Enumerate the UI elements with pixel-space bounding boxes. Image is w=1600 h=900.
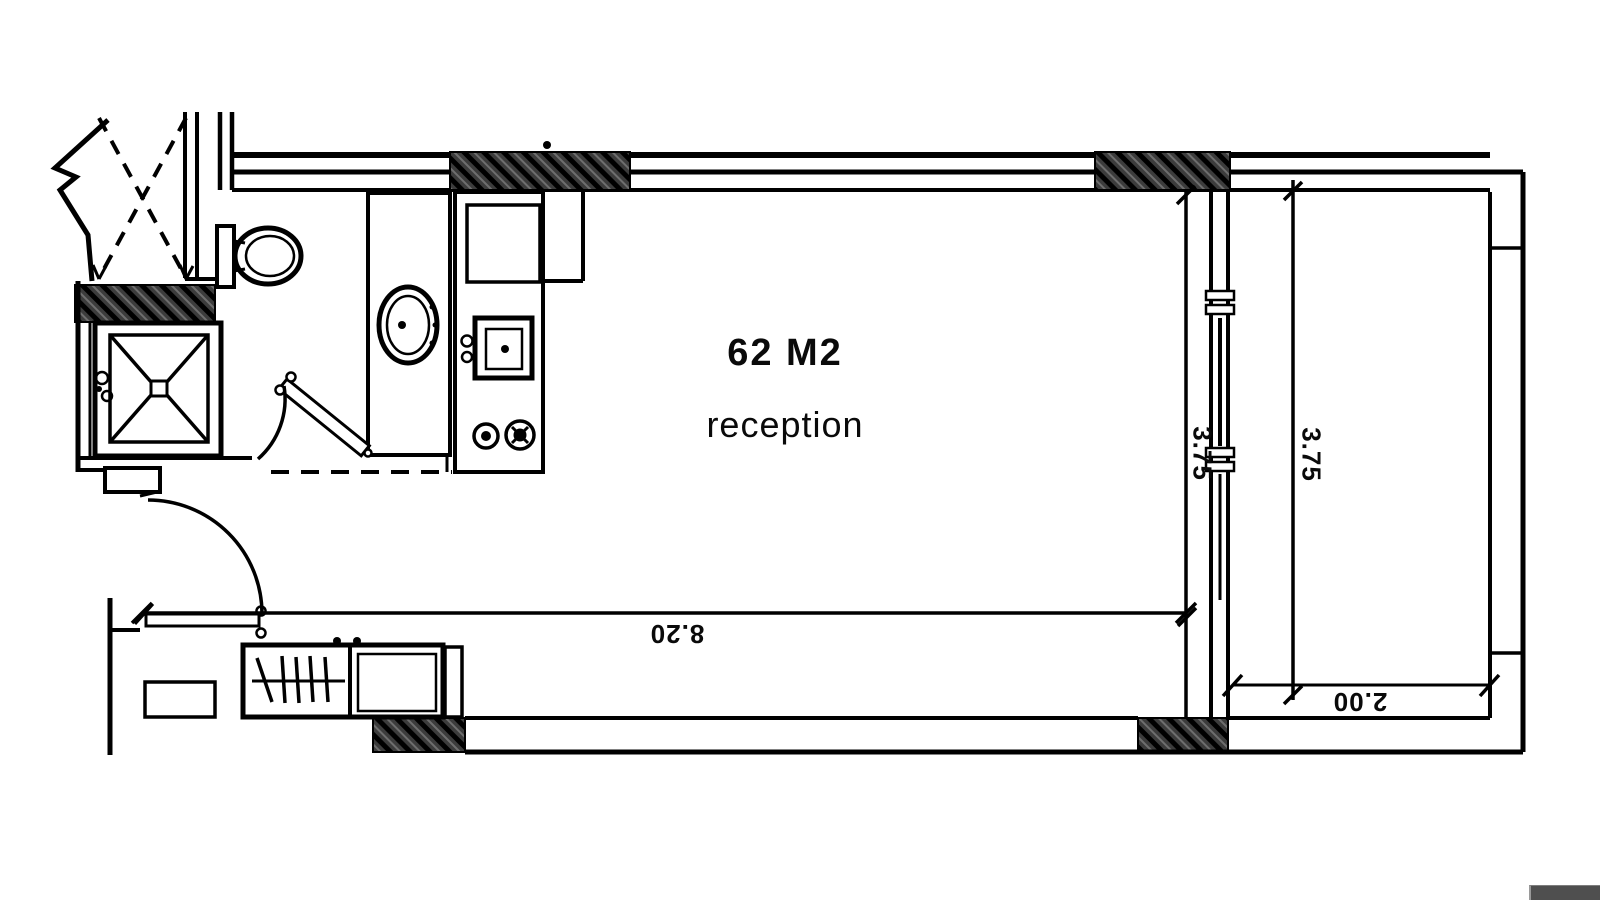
scrollbar-fragment[interactable] xyxy=(1529,885,1600,900)
wardrobe-end-panel xyxy=(445,647,462,717)
wall-hatch-bottom-right xyxy=(1138,718,1228,752)
washbasin-fixture xyxy=(368,193,450,455)
top-wall xyxy=(220,112,1523,190)
wall-hatch-top-left xyxy=(450,152,630,190)
elevator-shaft xyxy=(55,112,216,281)
shaft-dashed-x xyxy=(99,118,186,278)
room-area-label: 62 M2 xyxy=(685,332,885,375)
wardrobe xyxy=(145,637,462,717)
floorplan-viewer: 62 M2 reception 8.20 3.75 3.75 2.00 xyxy=(0,0,1600,900)
basin-drain xyxy=(398,321,406,329)
balcony xyxy=(1490,172,1523,752)
entry-door-swing-arc xyxy=(148,500,262,614)
shower-fixture xyxy=(95,323,221,456)
dim-label-8-20: 8.20 xyxy=(627,618,727,649)
wall-hatch-shaft xyxy=(75,285,215,322)
dim-label-3-75-outer: 3.75 xyxy=(1296,405,1327,505)
entry-door-leaf xyxy=(146,614,259,626)
sink-drain xyxy=(501,345,509,353)
shoe-cabinet xyxy=(145,682,215,717)
wall-hatch-top-right xyxy=(1095,152,1230,190)
bottom-wall xyxy=(465,718,1523,752)
dim-label-3-75-inner: 3.75 xyxy=(1187,404,1218,504)
room-name-label: reception xyxy=(685,404,885,446)
wall-hatch-bottom-left xyxy=(373,718,465,752)
dim-label-2-00: 2.00 xyxy=(1310,686,1410,717)
shower-valve xyxy=(96,372,108,384)
toilet-fixture xyxy=(217,226,301,287)
door-leaf xyxy=(279,379,370,456)
shower-drain xyxy=(151,381,167,396)
kitchenette xyxy=(455,192,583,472)
break-line xyxy=(55,120,108,281)
floor-plan-drawing xyxy=(0,0,1600,900)
bathroom-door xyxy=(258,373,372,460)
door-swing-arc xyxy=(258,386,285,459)
